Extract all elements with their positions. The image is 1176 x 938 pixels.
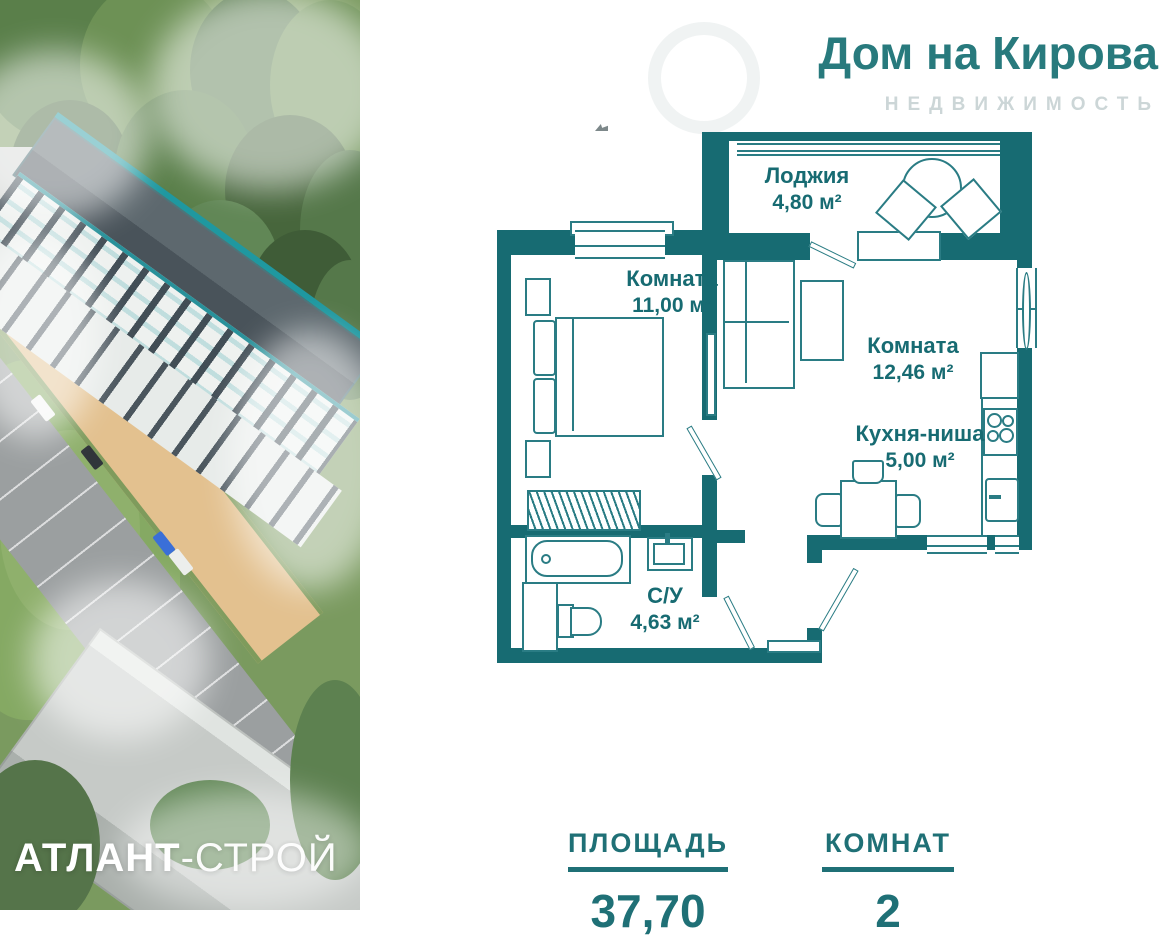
developer-name-light: -СТРОЙ [181,836,338,880]
wardrobe [527,490,641,531]
developer-logo: АТЛАНТ-СТРОЙ [14,836,338,881]
kitchen-window [927,535,987,554]
room-label-living: Комната 12,46 м² [828,332,998,386]
room-area: 12,46 м² [828,360,998,386]
pillow [533,320,556,376]
balcony-window [857,231,941,261]
flyer-root: { "header": { "title": "Дом на Кирова", … [0,0,1176,910]
nightstand [525,440,551,478]
living-window-leaf [1022,272,1031,350]
room-area: 4,63 м² [580,610,750,636]
stat-rooms-underline [822,867,954,872]
page-title: Дом на Кирова [818,26,1158,80]
loggia-right-pillar [1000,132,1032,260]
entrance-door-leaf [818,568,858,632]
pillow [533,378,556,434]
room-name: Комната [587,265,757,293]
loggia-top-wall [702,132,1032,141]
room-name: Кухня-ниша [835,420,1005,448]
room-name: Лоджия [722,162,892,190]
bath-faucet [665,533,670,543]
stat-area-label: ПЛОЩАДЬ [528,828,768,859]
room-label-bedroom: Комната 11,00 м² [587,265,757,319]
room-name: Комната [828,332,998,360]
hall-wall-stub [717,530,745,543]
bath-sink-basin [653,543,685,565]
dining-table [840,480,897,539]
room-area: 5,00 м² [835,448,1005,474]
bedroom-door-leaf [686,426,721,481]
vent-shaft [522,582,558,652]
fog [30,580,210,740]
room-label-loggia: Лоджия 4,80 м² [722,162,892,216]
loggia-bottom-wall [702,233,810,260]
room-area: 4,80 м² [722,190,892,216]
bedroom-wall [702,475,717,525]
balcony-door-leaf [809,241,857,268]
stat-area-underline [568,867,728,872]
room-label-kitchen: Кухня-ниша 5,00 м² [835,420,1005,474]
dining-chair-right [895,494,921,528]
entrance-threshold [767,640,821,653]
bathtub-drain [541,554,551,564]
bed-blanket-line [572,319,574,431]
left-wall [497,230,511,663]
kitchen-window-small [995,535,1019,554]
stat-rooms: КОМНАТ 2 [768,828,1008,938]
stat-rooms-label: КОМНАТ [768,828,1008,859]
bedroom-pocket-door [706,333,716,416]
stat-area-value: 37,70 [528,884,768,938]
dining-chair-left [815,493,842,527]
stat-rooms-value: 2 [768,884,1008,938]
floor-plan: Лоджия 4,80 м² Комната 11,00 м² Комната … [497,130,1035,663]
loggia-top-window [737,143,1000,156]
room-name: С/У [580,582,750,610]
stat-area: ПЛОЩАДЬ 37,70 [528,828,768,938]
developer-name-bold: АТЛАНТ [14,836,181,880]
kitchen-sink [985,478,1019,522]
agency-watermark: НЕДВИЖИМОСТЬ [885,94,1160,116]
sink-faucet [989,495,1001,499]
agency-pin-watermark [648,22,760,134]
sofa-seat-line [725,321,789,323]
nightstand [525,278,551,316]
entry-step-wall [807,535,822,563]
room-label-bathroom: С/У 4,63 м² [580,582,750,636]
building-render-photo: АТЛАНТ-СТРОЙ [0,0,360,910]
bedroom-window [575,230,665,259]
room-area: 11,00 м² [587,293,757,319]
